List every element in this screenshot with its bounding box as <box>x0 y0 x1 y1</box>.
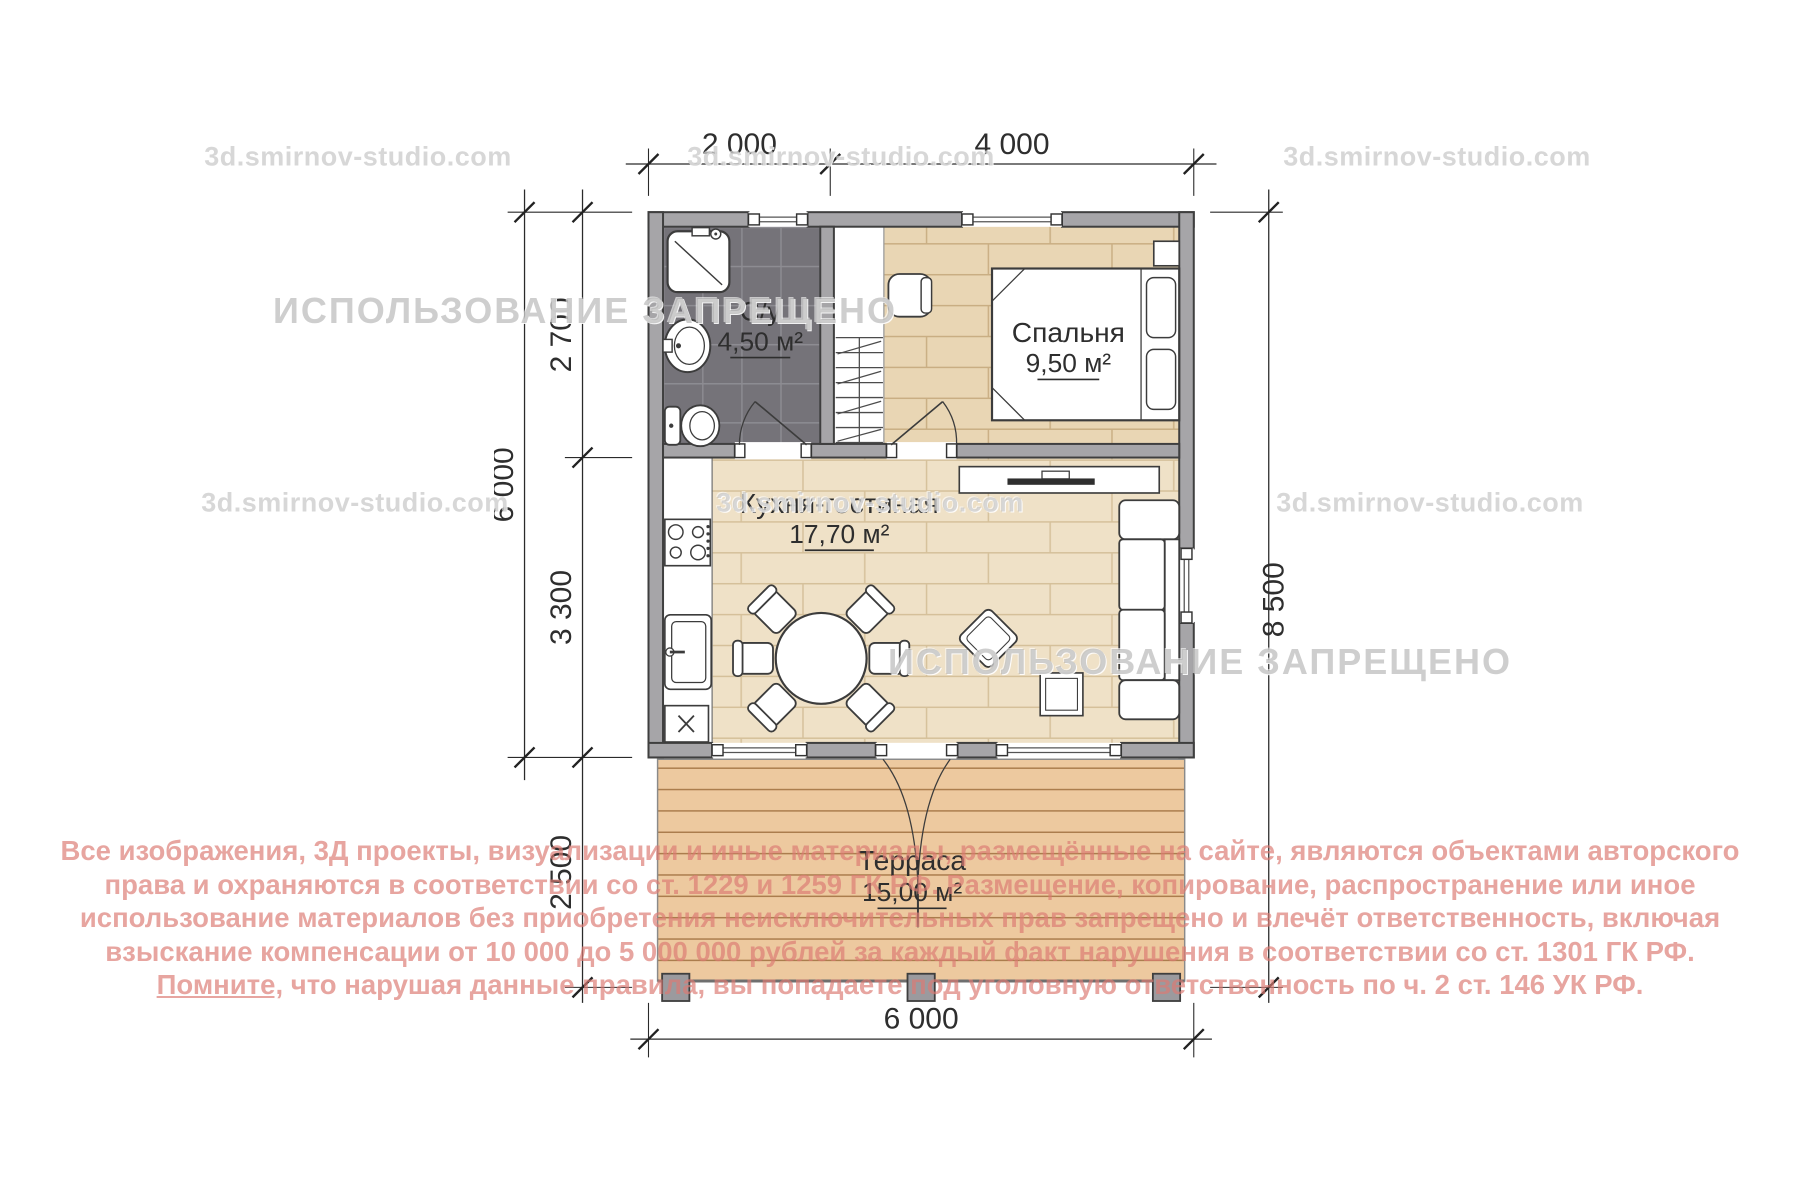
washbasin <box>663 319 710 372</box>
kitchen-counter <box>663 458 712 743</box>
kitchen-sink <box>665 615 711 690</box>
room-label-kitchen: Кухня-гостиная <box>740 487 939 519</box>
watermark-site: 3d.smirnov-studio.com <box>204 142 512 173</box>
wall <box>1179 212 1194 548</box>
window-top-bathroom <box>748 212 807 227</box>
watermark-site: 3d.smirnov-studio.com <box>1276 488 1584 519</box>
watermark-site: 3d.smirnov-studio.com <box>1283 142 1591 173</box>
dim-top-left: 2 000 <box>702 128 777 161</box>
floor-plan-page: 2 000 4 000 2 700 3 300 2 500 6 000 8 50… <box>0 0 1800 1200</box>
room-area-terrace: 15,00 м² <box>862 877 962 907</box>
washing-machine <box>665 706 709 742</box>
sofa <box>1119 500 1179 719</box>
wall <box>1121 743 1194 758</box>
room-area-bedroom: 9,50 м² <box>1026 348 1112 378</box>
wall <box>820 227 834 444</box>
copyright-remember: Помните, <box>157 969 283 1000</box>
window-bottom-living <box>997 743 1122 758</box>
floor-plan: 2 000 4 000 2 700 3 300 2 500 6 000 8 50… <box>494 112 1321 1103</box>
pillow <box>1147 349 1176 409</box>
dim-left-total: 6 000 <box>494 447 520 522</box>
pillow <box>1147 278 1176 338</box>
window-bottom-kitchen <box>712 743 807 758</box>
armchair <box>888 274 931 317</box>
room-area-kitchen: 17,70 м² <box>789 519 889 549</box>
terrace-post <box>908 974 935 1001</box>
terrace-post <box>1153 974 1180 1001</box>
window-right-living <box>1179 548 1194 623</box>
dim-left-upper: 2 700 <box>545 297 578 372</box>
dining-table <box>776 613 867 704</box>
dim-left-terrace: 2 500 <box>545 835 578 910</box>
room-label-bathroom: С/у <box>740 295 781 326</box>
window-top-bedroom <box>962 212 1062 227</box>
wall <box>807 743 876 758</box>
dim-bottom-total: 6 000 <box>884 1002 959 1035</box>
wall <box>957 444 1180 458</box>
wall <box>957 743 996 758</box>
stove <box>665 519 710 565</box>
side-table <box>1040 673 1083 716</box>
shower <box>668 228 730 293</box>
dining-chair <box>869 641 909 676</box>
wall <box>811 444 886 458</box>
tv-console <box>959 467 1159 493</box>
nightstand <box>1154 241 1179 266</box>
wall <box>808 212 962 227</box>
tv <box>1007 478 1094 484</box>
wall <box>1062 212 1194 227</box>
dim-left-lower: 3 300 <box>545 570 578 645</box>
watermark-site: 3d.smirnov-studio.com <box>201 488 509 519</box>
room-label-bedroom: Спальня <box>1012 316 1125 348</box>
dim-right-total: 8 500 <box>1258 562 1291 637</box>
toilet <box>665 405 720 446</box>
dim-top-right: 4 000 <box>974 128 1049 161</box>
wall <box>648 743 712 758</box>
kitchen-fixtures <box>665 519 711 742</box>
dining-chair <box>733 641 773 676</box>
terrace-post <box>662 974 689 1001</box>
room-area-bathroom: 4,50 м² <box>718 326 804 356</box>
wall <box>1179 623 1194 758</box>
wall <box>648 212 663 757</box>
room-label-terrace: Терраса <box>858 844 966 876</box>
